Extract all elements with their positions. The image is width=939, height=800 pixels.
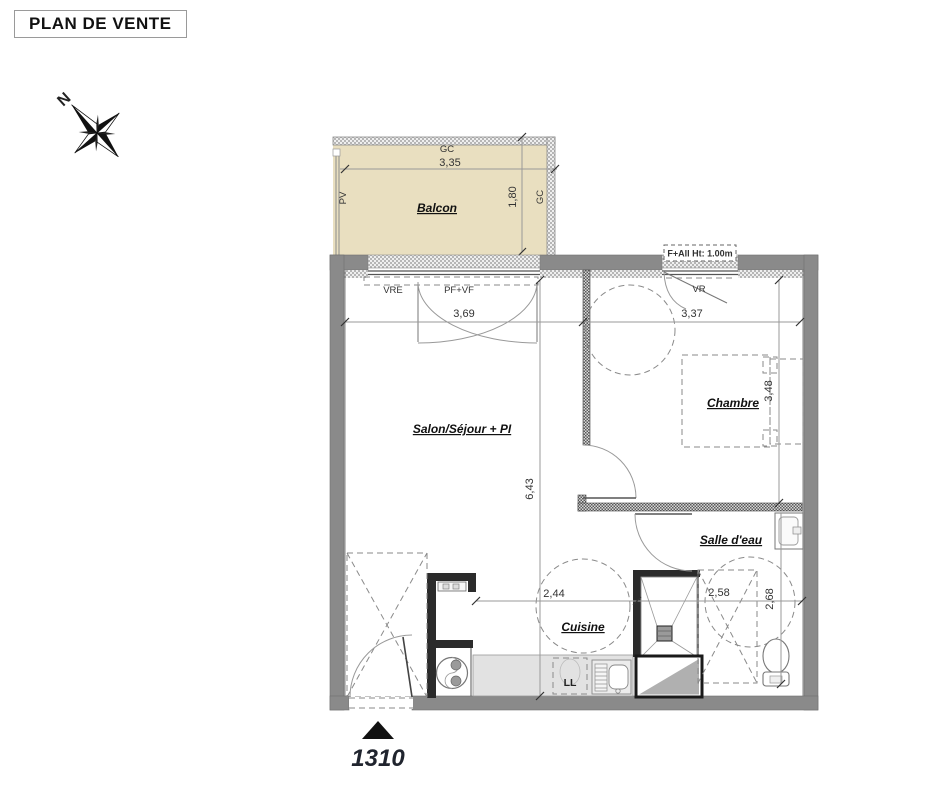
wall-bedroom-bathroom: [578, 503, 802, 511]
entry-closet: [347, 553, 427, 697]
balcony-screen-post: [333, 149, 340, 156]
balcony-rail-top-label: GC: [440, 144, 454, 155]
wall-living-bedroom: [583, 270, 590, 445]
wall-bottom-left: [330, 696, 349, 710]
technical-core: [427, 573, 476, 698]
floor-plan-svg: N GC 3,35 PV Balcon 1,80 GC: [0, 0, 939, 800]
balcony-guardrail-right: [547, 137, 555, 257]
french-door-label: PF+VF: [444, 285, 474, 296]
balcony-depth-value: 1,80: [507, 186, 519, 207]
wall-top-mid: [540, 255, 662, 270]
toilet-bowl: [763, 639, 789, 673]
balcony-area: GC 3,35 PV Balcon 1,80 GC: [333, 133, 559, 257]
sink-drainer: [595, 664, 607, 691]
kitchen-clearance-circle: [536, 559, 630, 653]
heater-pipe: [451, 660, 461, 670]
living-room-label: Salon/Séjour + PI: [413, 422, 512, 436]
wall-left: [330, 255, 344, 710]
wall-strip: [540, 270, 662, 278]
core-wall-mid: [427, 640, 473, 648]
balcony-width-value: 3,35: [439, 157, 460, 169]
dimension-lines: [341, 276, 806, 700]
entrance-door-swing: [350, 635, 412, 697]
toilet-flush: [770, 676, 782, 683]
bedroom-shutter-label: VR: [692, 284, 705, 295]
kitchen-width-value: 2,44: [543, 588, 564, 600]
shower-drain: [657, 626, 672, 641]
bathroom-width-value: 2,58: [708, 587, 729, 599]
niche-fixture: [438, 582, 466, 591]
bedroom-door-swing: [583, 445, 636, 498]
wall-bottom-right: [412, 696, 818, 710]
balcony-label: Balcon: [417, 201, 457, 215]
washer-label: LL: [564, 677, 577, 689]
entrance-marker-icon: [362, 721, 394, 739]
window-note-text: F+All Ht: 1.00m: [667, 249, 732, 259]
shower-wall-left: [633, 570, 641, 657]
roller-shutter-label: VRE: [383, 285, 403, 296]
niche-knob: [443, 584, 449, 589]
bedroom-width-value: 3,37: [681, 308, 702, 320]
wall-right: [804, 255, 818, 710]
kitchen-counter: LL: [473, 655, 633, 696]
roller-shutter-box: [364, 277, 538, 285]
bedroom-depth-value: 3,48: [763, 380, 775, 401]
shower-tray: [641, 577, 697, 657]
living-window-band: [368, 255, 540, 268]
heater-pipe: [451, 676, 461, 686]
sink-bowl: [609, 665, 628, 689]
french-door-swing: [418, 282, 537, 343]
bathroom-door-swing: [635, 514, 692, 571]
floor-plan-page: PLAN DE VENTE N: [0, 0, 939, 800]
bedroom-label: Chambre: [707, 396, 759, 410]
window-note: F+All Ht: 1.00m: [664, 245, 736, 261]
unit-number: 1310: [351, 745, 405, 772]
core-wall-tab: [468, 573, 476, 592]
entrance-opening: [349, 697, 413, 709]
living-depth-value: 6,43: [524, 478, 536, 499]
bathroom-depth-value: 2,68: [764, 588, 776, 609]
living-width-value: 3,69: [453, 308, 474, 320]
kitchen-label: Cuisine: [561, 620, 605, 634]
balcony-rail-right-label: GC: [535, 190, 546, 204]
washbasin-faucet: [793, 527, 801, 534]
shower-area: [633, 570, 702, 697]
bedroom-clearance-circle: [585, 285, 675, 375]
core-wall-vertical: [427, 573, 436, 698]
french-door-swing: [418, 282, 537, 343]
bathroom-label: Salle d'eau: [700, 533, 763, 547]
balcony-screen-label: PV: [338, 191, 349, 204]
compass-rose-icon: N: [38, 72, 141, 177]
compass-north-label: N: [54, 90, 74, 110]
niche-knob: [453, 584, 459, 589]
